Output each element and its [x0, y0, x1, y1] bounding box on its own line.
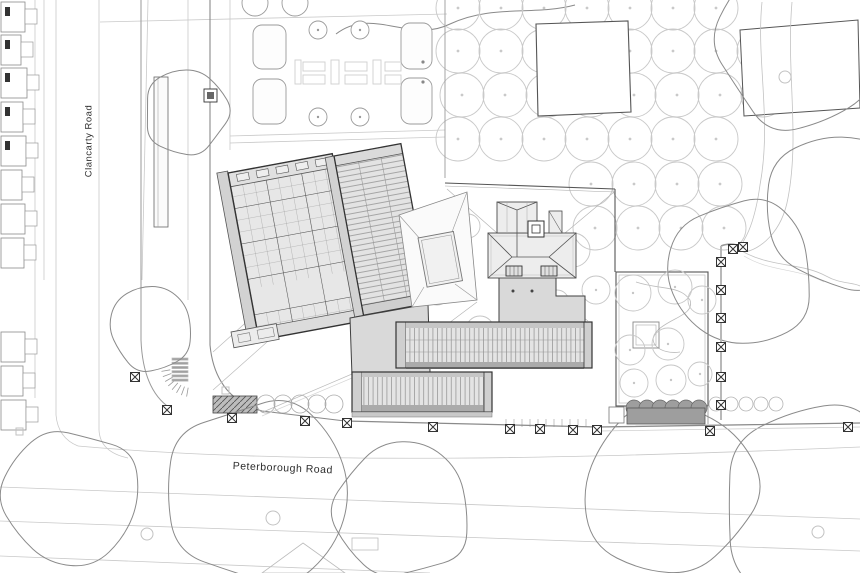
north-east-plot — [740, 20, 860, 116]
bench — [345, 62, 367, 71]
hedge-shrub — [308, 395, 326, 413]
tree-canopy — [668, 199, 810, 343]
bench — [373, 60, 381, 84]
tree-canopy — [169, 401, 348, 573]
fence-post-marker — [163, 406, 172, 415]
playground — [242, 0, 432, 126]
planter — [253, 25, 286, 69]
hedge-block — [627, 408, 705, 424]
sliver-building — [154, 77, 168, 227]
crossing-stripe — [172, 375, 188, 377]
orchard-tree — [479, 0, 523, 30]
road-label-clancarty: Clancarty Road — [84, 105, 95, 177]
circle-marker — [812, 526, 824, 538]
fence-post-marker — [717, 373, 726, 382]
fence-post-marker — [729, 245, 738, 254]
dormer — [541, 266, 557, 276]
fence-post-marker — [717, 286, 726, 295]
terrace-house — [1, 102, 23, 132]
planter — [401, 23, 432, 69]
bench — [295, 60, 301, 84]
central-lawn-square — [536, 21, 631, 116]
terraced-houses — [1, 2, 39, 430]
terrace-house — [1, 366, 23, 396]
fence-post-marker — [717, 401, 726, 410]
terrace-house — [1, 68, 27, 98]
fence-post-marker — [301, 417, 310, 426]
radial-tick — [172, 383, 178, 390]
orchard-tree — [436, 0, 480, 30]
tree-canopy — [0, 432, 138, 566]
fence-post-marker — [131, 373, 140, 382]
fence-post-marker — [569, 426, 578, 435]
hedge-shrub — [754, 397, 768, 411]
radial-tick — [161, 370, 170, 372]
radial-tick — [177, 385, 182, 393]
fence-post-marker — [717, 343, 726, 352]
terrace-house — [1, 238, 24, 268]
fence-post-marker — [343, 419, 352, 428]
orchard-tree — [651, 0, 695, 30]
hedge-shrub — [291, 395, 309, 413]
fence-post-marker — [429, 423, 438, 432]
terrace-house — [1, 35, 21, 65]
circle-marker — [266, 511, 280, 525]
radial-tick — [187, 388, 189, 397]
tree-canopy — [767, 137, 860, 290]
bench — [385, 62, 401, 71]
circle-marker — [141, 528, 153, 540]
terrace-house — [1, 136, 26, 166]
terrace-house — [1, 170, 22, 200]
fence-post-marker — [536, 425, 545, 434]
tree-canopy — [729, 405, 860, 573]
play-tree — [282, 0, 308, 16]
flat-roof-extension — [499, 272, 585, 323]
hedge-shrub — [325, 395, 343, 413]
bin-store — [231, 324, 279, 348]
fence-post-marker — [228, 414, 237, 423]
terrace-house — [1, 2, 25, 32]
dormer — [506, 266, 522, 276]
terrace-house — [1, 204, 25, 234]
hedge-shrub — [739, 397, 753, 411]
planter — [253, 79, 286, 124]
hedge-shrub — [724, 397, 738, 411]
crossing-stripe — [172, 379, 188, 381]
radial-tick — [181, 387, 184, 395]
fence-post-marker — [506, 425, 515, 434]
garden-path — [636, 282, 691, 352]
plan-svg — [0, 0, 860, 573]
hedge-shrub — [769, 397, 783, 411]
fence-post-marker — [717, 258, 726, 267]
radial-tick — [163, 374, 171, 377]
planter — [401, 78, 432, 124]
hedge-shrub — [274, 395, 292, 413]
bench — [331, 60, 339, 84]
fence-post-marker — [739, 243, 748, 252]
building-south-east — [396, 322, 592, 369]
site-plan: Clancarty Road Peterborough Road — [0, 0, 860, 573]
crossing-stripe — [172, 366, 188, 368]
main-buildings — [154, 77, 592, 417]
terrace-house — [1, 400, 26, 430]
terrace-house — [1, 332, 25, 362]
bench — [303, 62, 325, 71]
bench — [385, 75, 401, 84]
bench — [345, 75, 367, 84]
fence-post-marker — [593, 426, 602, 435]
fence-post-marker — [717, 314, 726, 323]
tree-canopy — [331, 442, 467, 573]
play-tree — [242, 0, 268, 16]
fence-post-marker — [706, 427, 715, 436]
crossing-stripe — [172, 371, 188, 373]
villa-hipped-roof — [488, 202, 576, 278]
bench — [303, 75, 325, 84]
fence-post-marker — [844, 423, 853, 432]
building-south-west — [352, 372, 492, 417]
